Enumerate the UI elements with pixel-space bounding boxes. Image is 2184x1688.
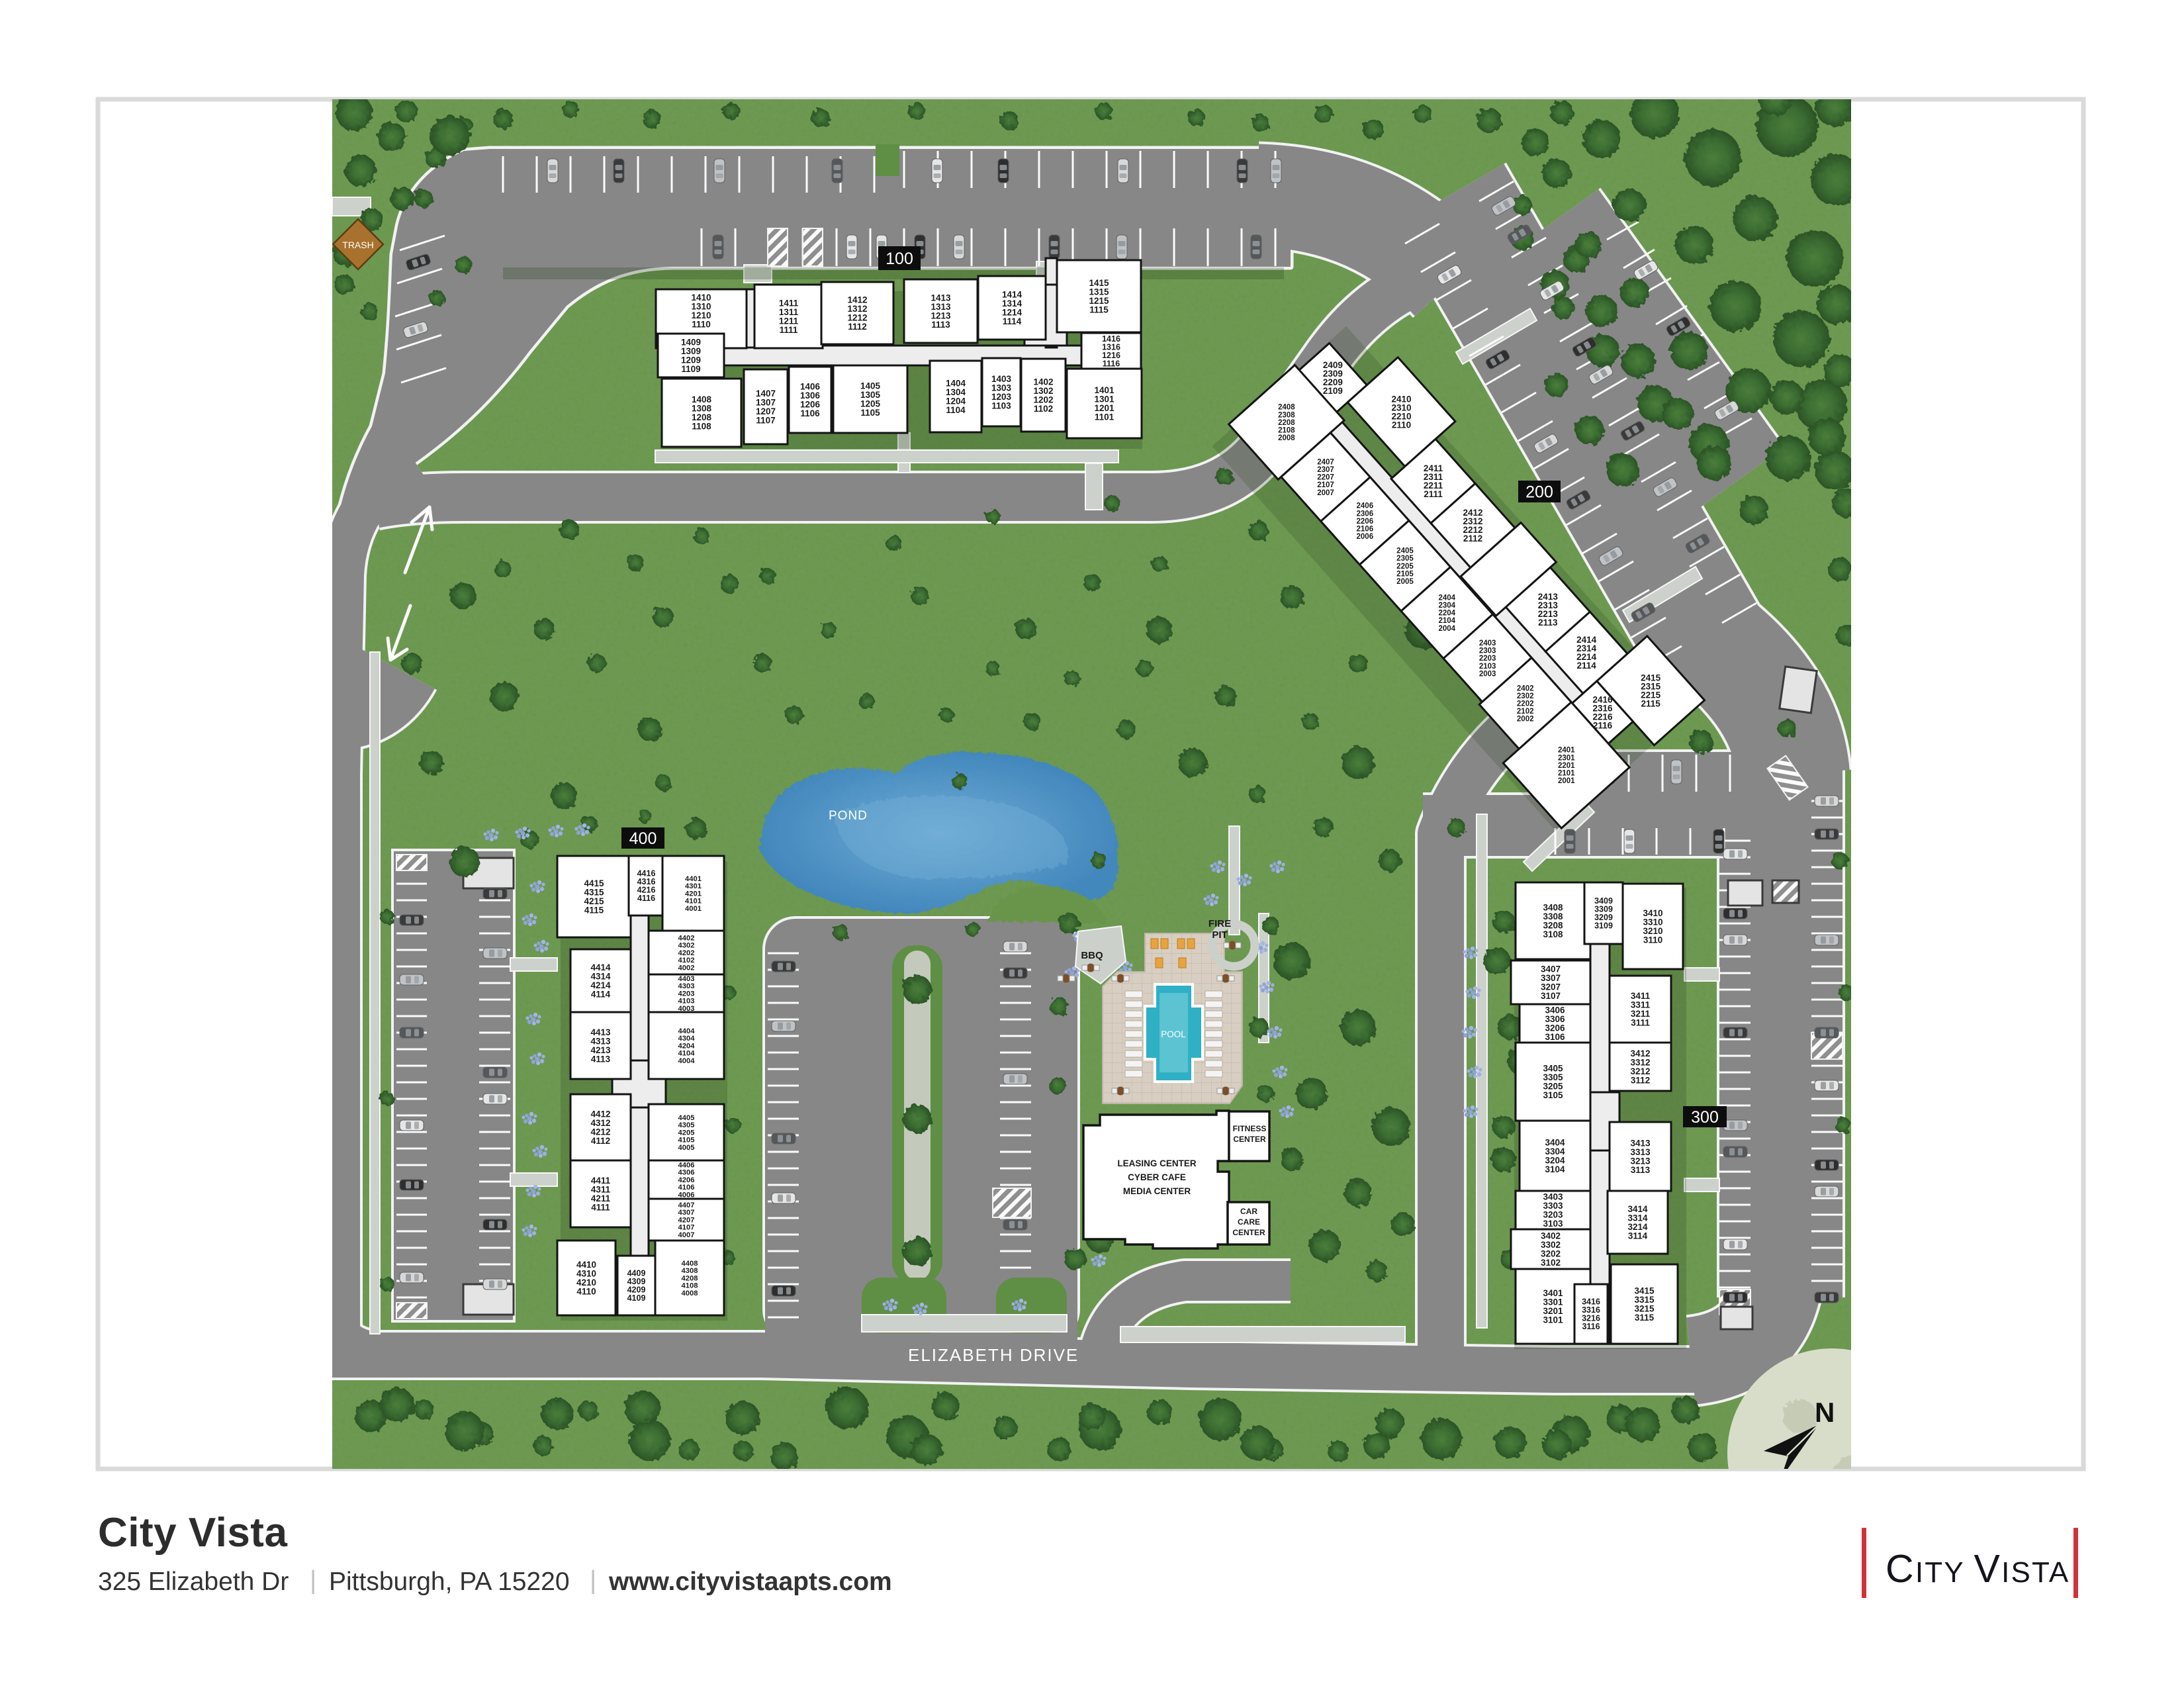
svg-text:3416331632163116: 3416331632163116	[1582, 1297, 1600, 1332]
svg-text:4415431542154115: 4415431542154115	[584, 878, 604, 915]
svg-text:4411431142114111: 4411431142114111	[591, 1176, 611, 1213]
svg-text:2412231222122112: 2412231222122112	[1463, 508, 1482, 543]
svg-text:3407330732073107: 3407330732073107	[1541, 964, 1561, 1002]
svg-text:2410231022102110: 2410231022102110	[1392, 394, 1412, 430]
svg-text:2411231122112111: 2411231122112111	[1424, 463, 1443, 499]
svg-text:4409430942094109: 4409430942094109	[627, 1269, 646, 1303]
svg-text:2409230922092109: 2409230922092109	[1323, 360, 1343, 396]
svg-text:24062306220621062006: 24062306220621062006	[1357, 502, 1374, 541]
svg-text:ELIZABETH DRIVE: ELIZABETH DRIVE	[908, 1345, 1079, 1365]
svg-text:3401330132013101: 3401330132013101	[1543, 1288, 1563, 1325]
svg-text:3405330532053105: 3405330532053105	[1543, 1064, 1563, 1101]
svg-text:3408330832083108: 3408330832083108	[1543, 903, 1563, 940]
svg-text:LEASING CENTERCYBER CAFEMEDIA: LEASING CENTERCYBER CAFEMEDIA CENTER	[1117, 1158, 1197, 1196]
svg-text:|: |	[310, 1566, 316, 1595]
svg-text:1407130712071107: 1407130712071107	[756, 389, 776, 426]
svg-text:POND: POND	[829, 809, 868, 823]
svg-text:44074307420741074007: 44074307420741074007	[678, 1201, 695, 1239]
svg-text:100: 100	[886, 250, 913, 268]
svg-text:24032303220321032003: 24032303220321032003	[1479, 639, 1496, 678]
svg-text:44034303420341034003: 44034303420341034003	[678, 975, 695, 1013]
svg-text:400: 400	[629, 829, 657, 848]
svg-text:2413231322132113: 2413231322132113	[1538, 592, 1559, 628]
svg-text:4412431242124112: 4412431242124112	[590, 1109, 610, 1147]
svg-text:24082308220821082008: 24082308220821082008	[1278, 404, 1295, 442]
svg-text:44054305420541054005: 44054305420541054005	[678, 1114, 695, 1152]
svg-text:3414331432143114: 3414331432143114	[1627, 1204, 1648, 1241]
svg-text:325 Elizabeth Dr: 325 Elizabeth Dr	[98, 1568, 289, 1596]
svg-text:44024302420241024002: 44024302420241024002	[678, 934, 695, 972]
svg-text:1415131512151115: 1415131512151115	[1089, 278, 1109, 315]
svg-text:1412131212121112: 1412131212121112	[847, 295, 867, 332]
svg-text:1401130112011101: 1401130112011101	[1094, 385, 1115, 422]
svg-text:1414131412141114: 1414131412141114	[1002, 290, 1023, 327]
svg-text:3406330632063106: 3406330632063106	[1545, 1006, 1565, 1043]
svg-text:POOL: POOL	[1161, 1029, 1186, 1039]
svg-text:1410131012101110: 1410131012101110	[691, 293, 711, 330]
svg-text:24042304220421042004: 24042304220421042004	[1438, 594, 1455, 632]
svg-text:2416231622162116: 2416231622162116	[1592, 694, 1613, 730]
svg-text:1411131112111111: 1411131112111111	[779, 299, 799, 336]
svg-text:2414231422142114: 2414231422142114	[1576, 635, 1597, 671]
svg-text:4416431642164116: 4416431642164116	[637, 869, 656, 904]
svg-text:1402130212021102: 1402130212021102	[1033, 377, 1053, 414]
svg-text:|: |	[590, 1566, 596, 1595]
svg-text:24012301220121012001: 24012301220121012001	[1558, 747, 1575, 785]
svg-text:TRASH: TRASH	[342, 240, 373, 250]
svg-text:4414431442144114: 4414431442144114	[590, 962, 611, 1000]
svg-text:1413131312131113: 1413131312131113	[931, 293, 951, 330]
svg-text:City Vista: City Vista	[98, 1510, 287, 1556]
svg-text:1416131612161116: 1416131612161116	[1102, 334, 1120, 369]
svg-text:3404330432043104: 3404330432043104	[1545, 1138, 1565, 1175]
svg-text:24022302220221022002: 24022302220221022002	[1517, 684, 1534, 723]
svg-text:N: N	[1815, 1397, 1835, 1428]
svg-text:4410431042104110: 4410431042104110	[576, 1260, 596, 1297]
svg-text:44044304420441044004: 44044304420441044004	[678, 1027, 696, 1065]
svg-text:44084308420841084008: 44084308420841084008	[682, 1260, 698, 1297]
svg-text:3410331032103110: 3410331032103110	[1643, 908, 1662, 945]
svg-text:1406130612061106: 1406130612061106	[800, 382, 821, 419]
svg-text:3413331332133113: 3413331332133113	[1630, 1139, 1651, 1176]
svg-text:24052305220521052005: 24052305220521052005	[1396, 547, 1414, 586]
svg-text:1405130512051105: 1405130512051105	[860, 381, 881, 418]
svg-text:3409330932093109: 3409330932093109	[1594, 896, 1613, 931]
svg-text:44014301420141014001: 44014301420141014001	[685, 875, 702, 913]
svg-text:3415331532153115: 3415331532153115	[1634, 1286, 1655, 1323]
svg-text:200: 200	[1525, 483, 1553, 502]
svg-text:BBQ: BBQ	[1081, 950, 1103, 961]
svg-text:Pittsburgh, PA 15220: Pittsburgh, PA 15220	[329, 1568, 570, 1596]
svg-text:1408130812081108: 1408130812081108	[692, 395, 712, 432]
svg-text:www.cityvistaapts.com: www.cityvistaapts.com	[608, 1568, 892, 1596]
svg-text:2415231522152115: 2415231522152115	[1641, 673, 1661, 709]
svg-text:4413431342134113: 4413431342134113	[590, 1027, 611, 1064]
svg-text:1403130312031103: 1403130312031103	[991, 374, 1012, 411]
svg-text:300: 300	[1691, 1108, 1719, 1127]
svg-text:3412331232123112: 3412331232123112	[1630, 1049, 1650, 1086]
svg-text:3402330232023102: 3402330232023102	[1541, 1231, 1561, 1268]
svg-text:44064306420641064006: 44064306420641064006	[678, 1161, 695, 1199]
svg-text:24072307220721072007: 24072307220721072007	[1317, 458, 1334, 496]
svg-text:1409130912091109: 1409130912091109	[681, 338, 701, 375]
svg-text:3403330332033103: 3403330332033103	[1543, 1192, 1563, 1229]
svg-text:1404130412041104: 1404130412041104	[946, 379, 966, 416]
svg-text:3411331132113111: 3411331132113111	[1631, 991, 1651, 1028]
